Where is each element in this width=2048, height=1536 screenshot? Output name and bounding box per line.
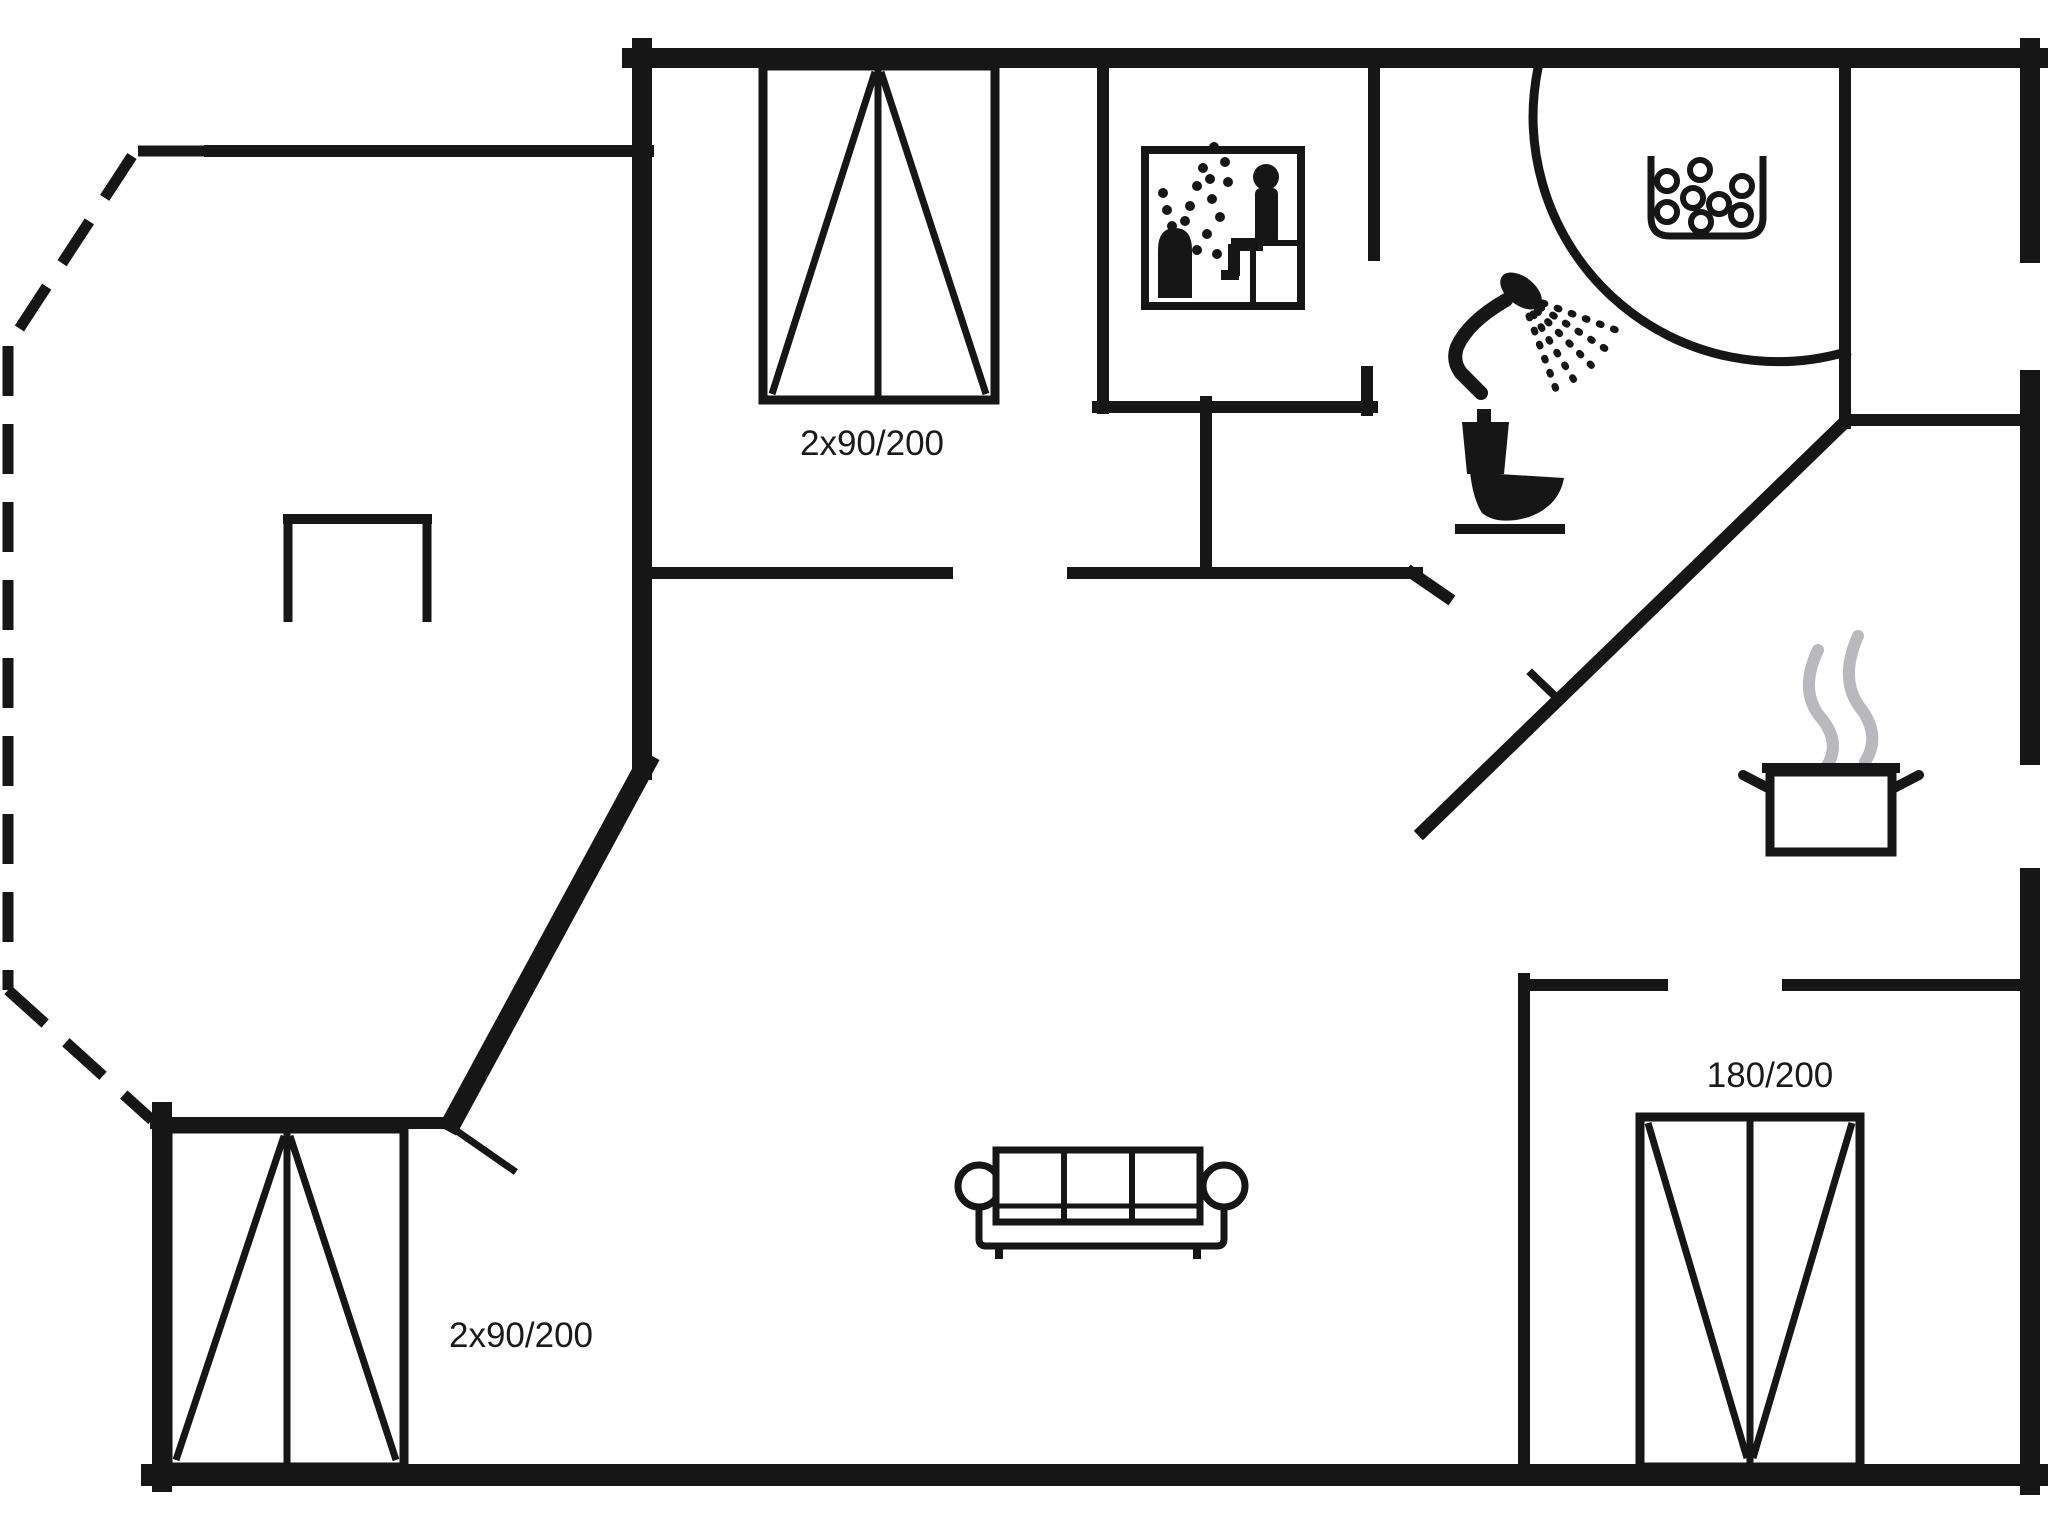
sofa-icon [958, 1150, 1245, 1259]
washbasin-icon [1651, 156, 1763, 236]
pot-body [1770, 772, 1892, 852]
terrace-dash-diagonal-upper [8, 156, 132, 346]
wall-diagonal-door-tick [1532, 674, 1559, 700]
bed-size-label-bottom-right: 180/200 [1707, 1056, 1834, 1095]
wall-corridor-stub [1412, 573, 1447, 597]
sofa-seat [996, 1150, 1200, 1222]
shower-corner-arc [1533, 68, 1846, 362]
sofa-armrest-right [1203, 1165, 1245, 1207]
terrace-dashed-outline [8, 151, 205, 1120]
shower-spray-dots [1529, 303, 1624, 392]
terrace-dash-diagonal-lower [8, 990, 152, 1120]
steaming-pot-icon [1743, 636, 1919, 852]
wall-living-diagonal-thick [452, 764, 646, 1122]
bed-bottom-left-double [168, 1129, 404, 1467]
toilet-bowl [1467, 472, 1564, 521]
toilet-icon [1455, 409, 1565, 534]
floor-plan-page: 2x90/200 2x90/200 180/200 [0, 0, 2048, 1536]
washbasin-bubbles [1657, 160, 1752, 232]
bed-top-double [763, 66, 995, 400]
shower-handle [1455, 300, 1506, 393]
bed-bottom-right-double [1640, 1117, 1860, 1467]
toilet-tank [1462, 422, 1509, 474]
floor-plan-svg: 2x90/200 2x90/200 180/200 [0, 0, 2048, 1536]
steam-wisps [1809, 636, 1872, 766]
sauna-pictogram [1145, 142, 1301, 306]
toilet-button [1477, 409, 1491, 423]
terrace-niche [283, 515, 432, 622]
bed-size-label-top: 2x90/200 [800, 424, 944, 463]
door-swing-icon [454, 1129, 513, 1170]
sauna-stove [1158, 228, 1192, 298]
toilet-base [1455, 524, 1565, 534]
bed-size-label-bottom-left: 2x90/200 [449, 1316, 593, 1355]
